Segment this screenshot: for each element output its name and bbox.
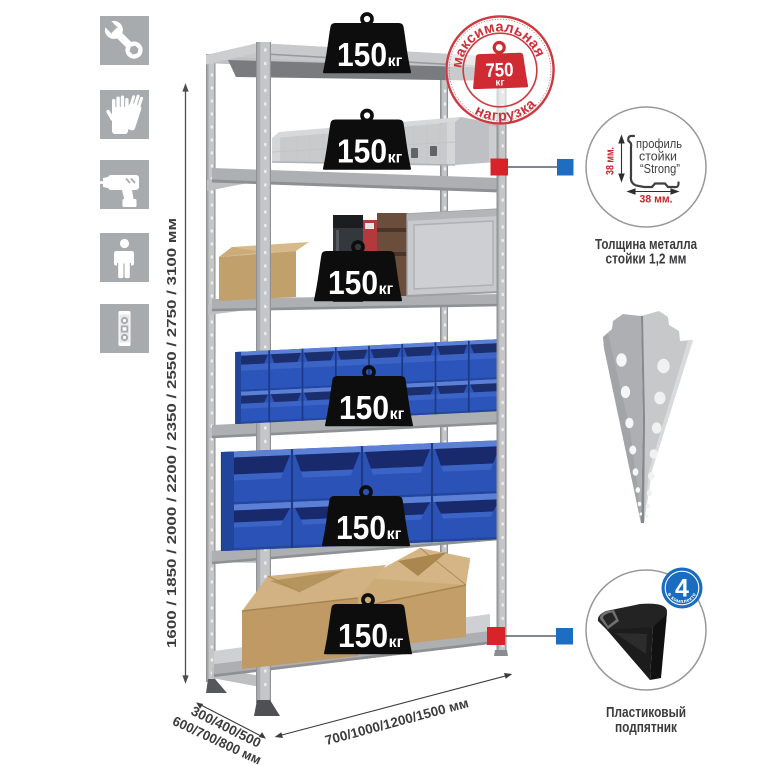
svg-text:150: 150 [337, 36, 387, 73]
svg-text:150: 150 [338, 617, 388, 654]
svg-text:подпятник: подпятник [615, 720, 678, 736]
svg-text:150: 150 [328, 264, 378, 301]
svg-text:150: 150 [337, 133, 387, 170]
svg-text:кг: кг [390, 406, 405, 423]
svg-text:38 мм.: 38 мм. [605, 147, 617, 175]
svg-text:150: 150 [336, 509, 386, 546]
svg-text:стойки 1,2 мм: стойки 1,2 мм [606, 252, 687, 268]
svg-text:кг: кг [388, 150, 403, 167]
svg-text:“Strong”: “Strong” [640, 162, 680, 176]
svg-text:38 мм.: 38 мм. [640, 194, 673, 206]
svg-text:кг: кг [495, 77, 505, 88]
svg-text:кг: кг [388, 53, 403, 70]
svg-text:кг: кг [389, 634, 404, 651]
svg-text:Пластиковый: Пластиковый [606, 705, 686, 721]
svg-text:1600 / 1850 / 2000 / 2200 / 23: 1600 / 1850 / 2000 / 2200 / 2350 / 2550 … [164, 218, 179, 648]
svg-text:кг: кг [387, 526, 402, 543]
svg-text:кг: кг [379, 281, 394, 298]
svg-text:150: 150 [339, 389, 389, 426]
